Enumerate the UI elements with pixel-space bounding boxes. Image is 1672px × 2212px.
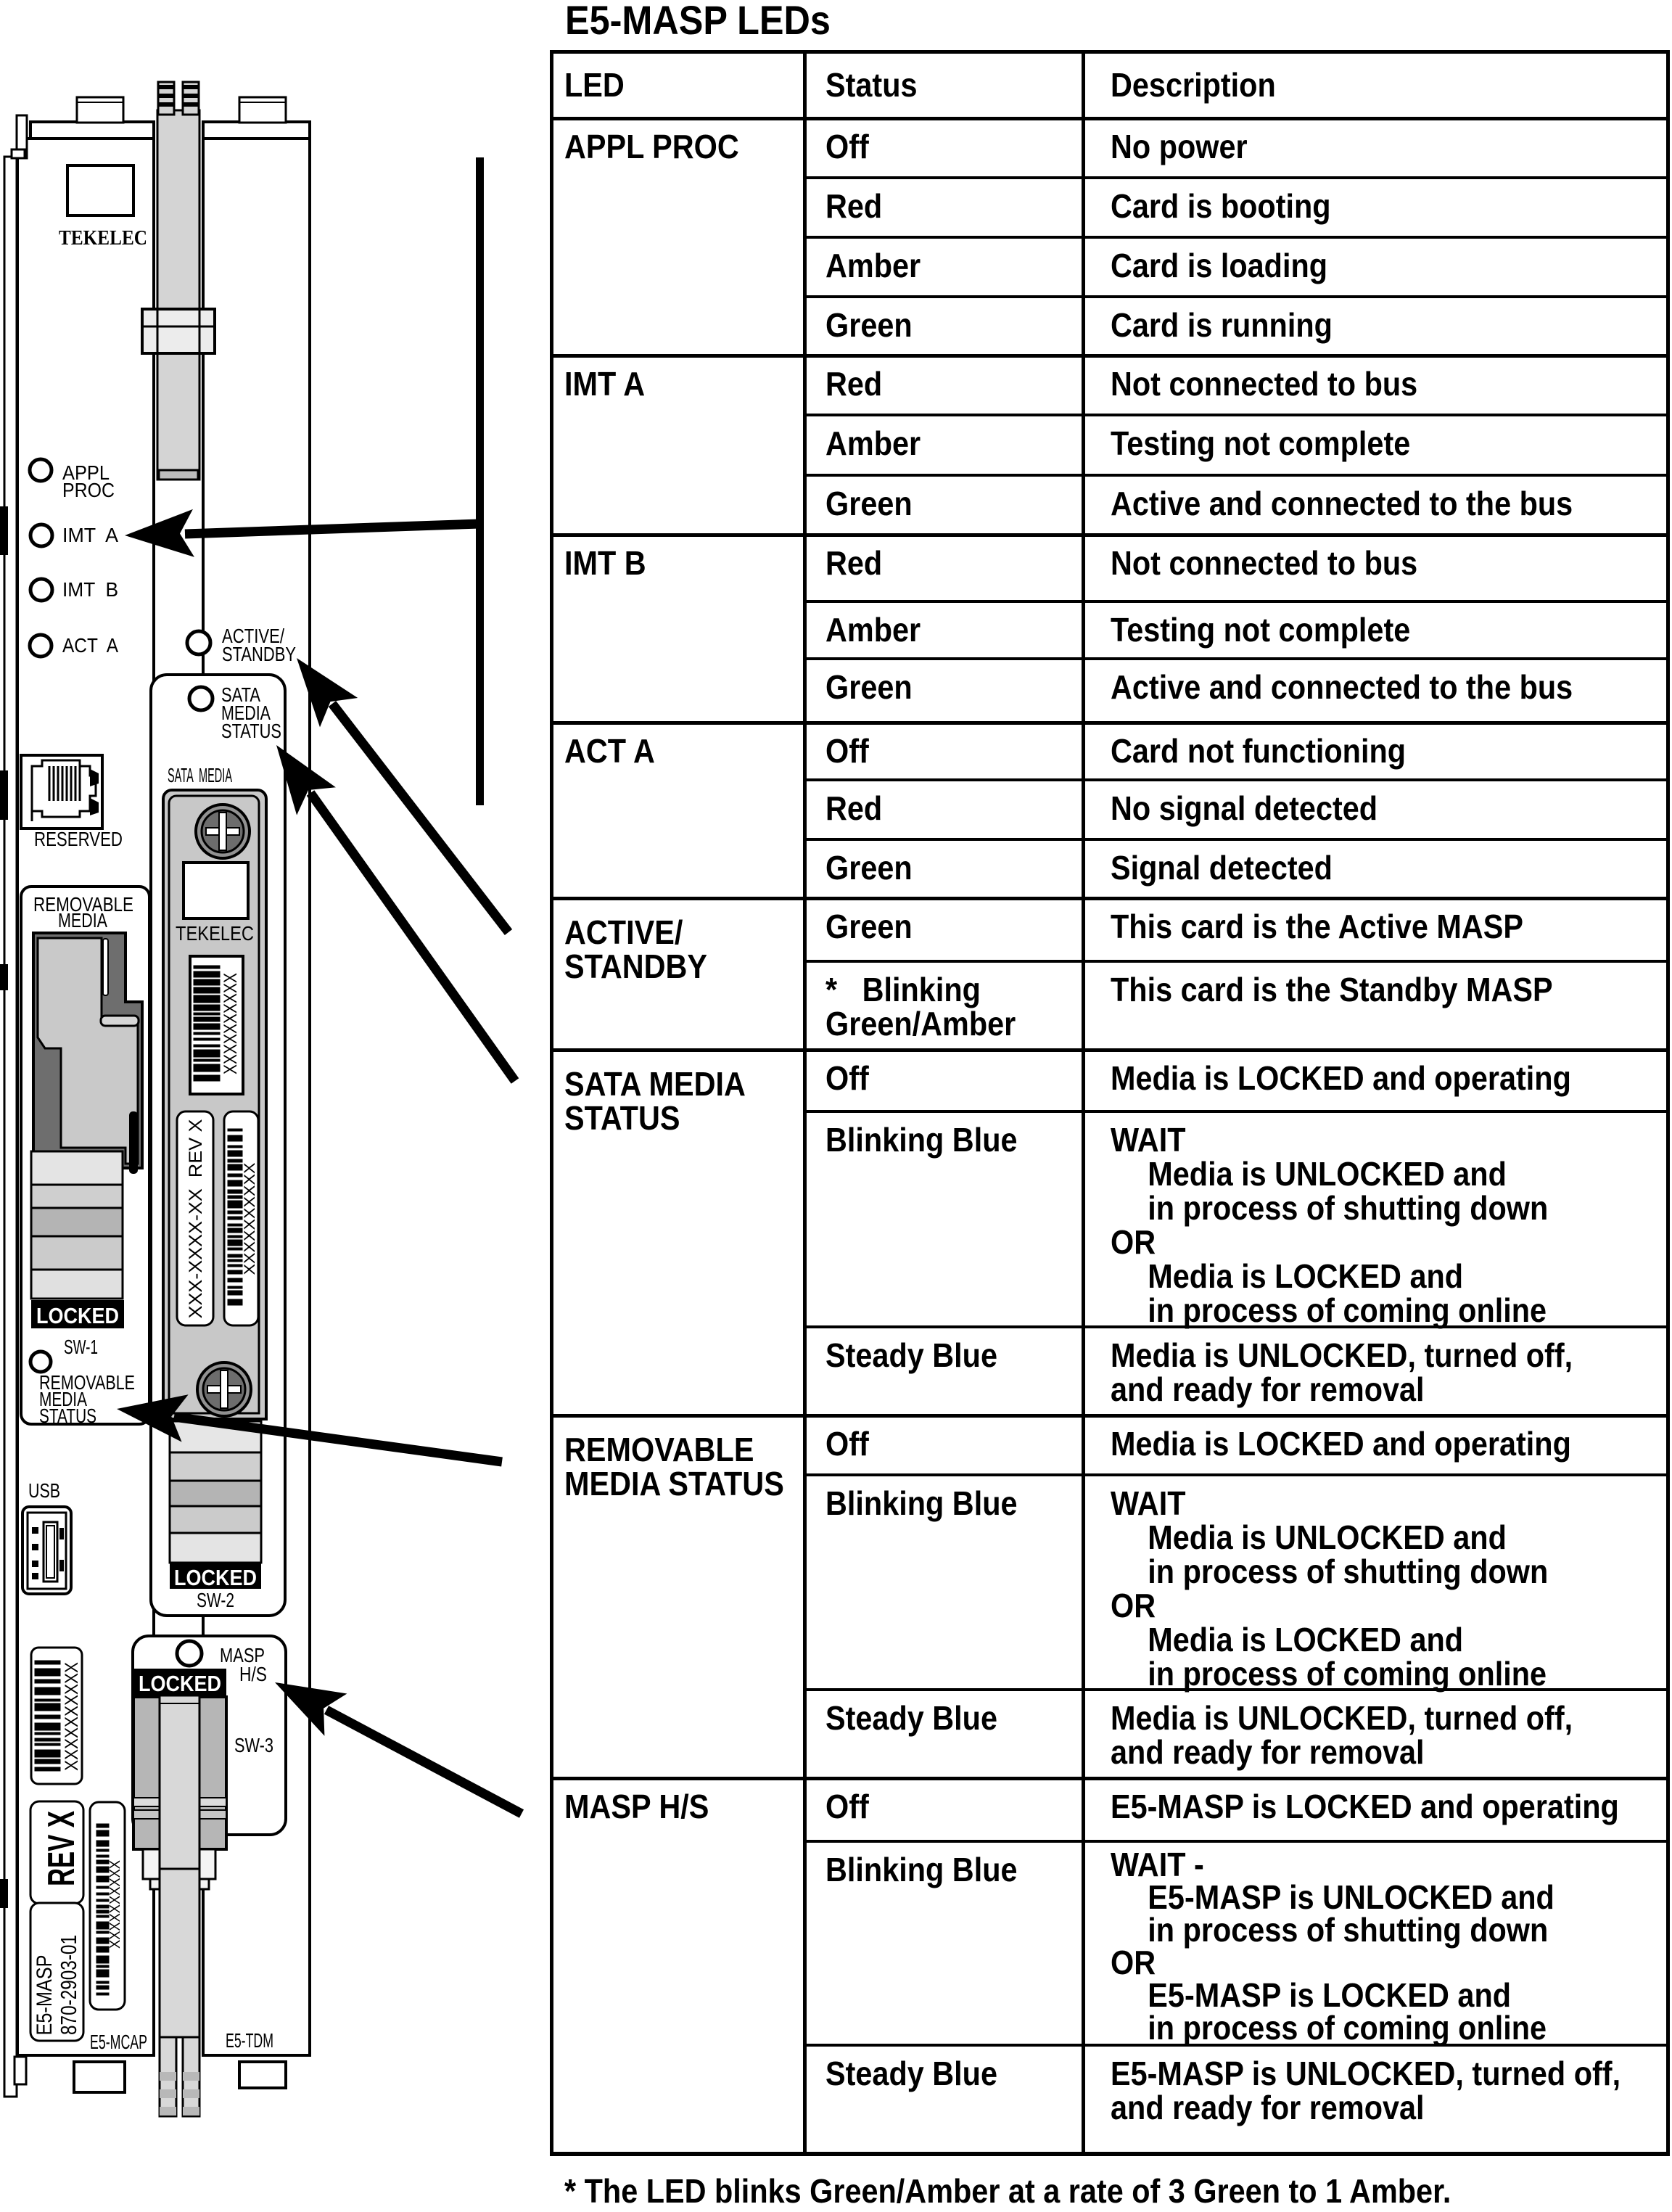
svg-text:LOCKED: LOCKED <box>174 1565 257 1590</box>
svg-text:TEKELEC: TEKELEC <box>176 922 254 945</box>
svg-text:XXXXXXXXXX: XXXXXXXXXX <box>62 1662 82 1771</box>
svg-text:870-2903-01: 870-2903-01 <box>56 1935 81 2035</box>
svg-text:RESERVED: RESERVED <box>34 828 123 850</box>
svg-text:IMT A: IMT A <box>62 524 118 546</box>
svg-text:E5-MCAP: E5-MCAP <box>90 2031 147 2053</box>
svg-text:E5-MASP: E5-MASP <box>33 1955 57 2036</box>
svg-text:LOCKED: LOCKED <box>139 1671 221 1696</box>
svg-text:ACT A: ACT A <box>62 634 118 657</box>
svg-text:USB: USB <box>28 1479 60 1502</box>
svg-text:SATA MEDIA: SATA MEDIA <box>168 764 232 786</box>
svg-text:H/S: H/S <box>239 1663 267 1685</box>
svg-text:SW-2: SW-2 <box>197 1589 234 1611</box>
svg-text:STANDBY: STANDBY <box>222 643 296 665</box>
svg-text:E5-TDM: E5-TDM <box>226 2029 273 2052</box>
svg-text:XXXXXXXXXX: XXXXXXXXXX <box>242 1163 258 1275</box>
svg-text:LOCKED: LOCKED <box>36 1303 119 1328</box>
svg-text:REV X: REV X <box>41 1811 83 1886</box>
svg-text:XXXXXXXXXX: XXXXXXXXXX <box>221 973 241 1074</box>
svg-text:SW-3: SW-3 <box>234 1734 273 1756</box>
svg-text:IMT B: IMT B <box>62 578 118 601</box>
svg-text:XXX-XXXX-XX REV X: XXX-XXXX-XX REV X <box>186 1119 206 1318</box>
svg-text:TEKELEC: TEKELEC <box>59 226 147 250</box>
svg-text:SW-1: SW-1 <box>64 1336 98 1358</box>
svg-text:STATUS: STATUS <box>39 1405 96 1427</box>
svg-text:STATUS: STATUS <box>221 720 281 742</box>
svg-text:MEDIA: MEDIA <box>58 909 107 932</box>
svg-text:XXXXXXXXXX: XXXXXXXXXX <box>107 1860 123 1949</box>
svg-text:PROC: PROC <box>62 479 115 501</box>
